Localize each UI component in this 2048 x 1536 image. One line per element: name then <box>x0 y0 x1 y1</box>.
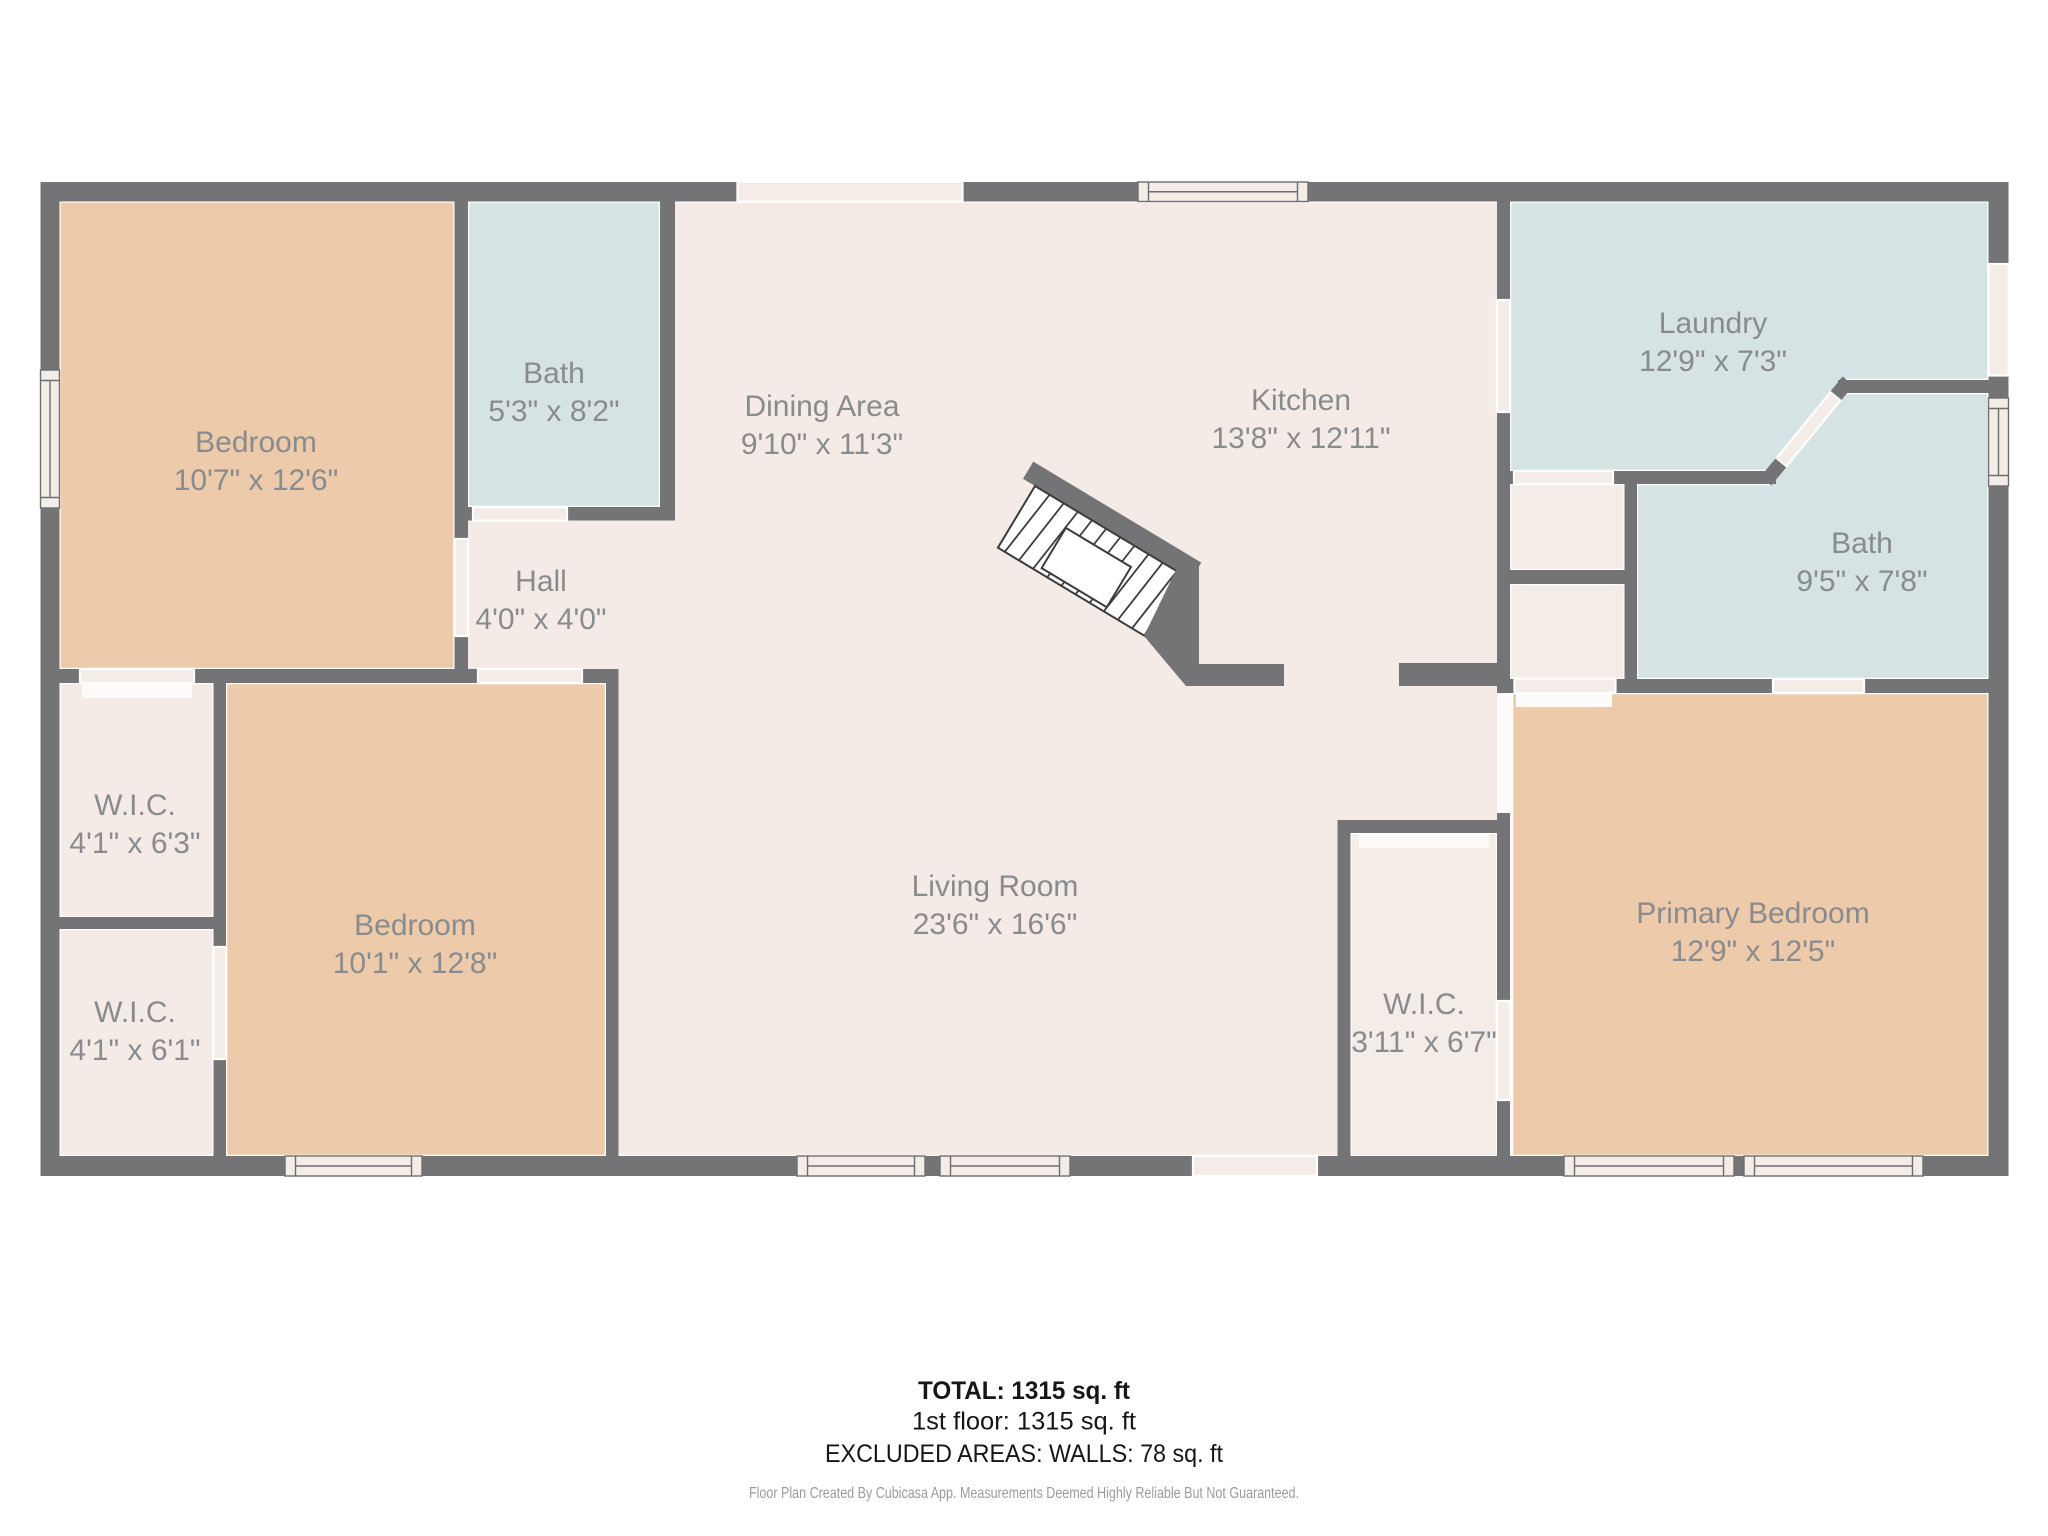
svg-text:Dining Area: Dining Area <box>744 390 899 423</box>
svg-text:10'1" x 12'8": 10'1" x 12'8" <box>333 947 498 980</box>
svg-text:23'6" x 16'6": 23'6" x 16'6" <box>913 908 1078 941</box>
svg-text:W.I.C.: W.I.C. <box>94 996 176 1029</box>
svg-text:Floor Plan Created By Cubicasa: Floor Plan Created By Cubicasa App. Meas… <box>749 1485 1299 1502</box>
svg-text:Kitchen: Kitchen <box>1251 384 1351 417</box>
svg-text:Bedroom: Bedroom <box>354 909 476 942</box>
svg-text:3'11" x 6'7": 3'11" x 6'7" <box>1351 1026 1497 1059</box>
svg-text:Bedroom: Bedroom <box>195 426 317 459</box>
svg-text:W.I.C.: W.I.C. <box>94 789 176 822</box>
svg-text:Bath: Bath <box>523 357 585 390</box>
svg-text:Hall: Hall <box>515 565 567 598</box>
svg-text:12'9" x 12'5": 12'9" x 12'5" <box>1671 935 1836 968</box>
svg-text:9'10" x 11'3": 9'10" x 11'3" <box>741 428 903 461</box>
svg-text:4'1" x 6'3": 4'1" x 6'3" <box>69 827 200 860</box>
svg-text:Living Room: Living Room <box>912 870 1079 903</box>
svg-text:TOTAL: 1315 sq. ft: TOTAL: 1315 sq. ft <box>918 1377 1131 1405</box>
svg-text:Laundry: Laundry <box>1659 307 1767 340</box>
svg-text:9'5" x 7'8": 9'5" x 7'8" <box>1796 565 1927 598</box>
svg-text:4'1" x 6'1": 4'1" x 6'1" <box>69 1034 200 1067</box>
svg-text:10'7" x 12'6": 10'7" x 12'6" <box>174 464 339 497</box>
svg-text:4'0" x 4'0": 4'0" x 4'0" <box>475 603 606 636</box>
svg-text:12'9" x 7'3": 12'9" x 7'3" <box>1639 345 1787 378</box>
svg-text:Bath: Bath <box>1831 527 1893 560</box>
svg-text:W.I.C.: W.I.C. <box>1383 988 1465 1021</box>
svg-text:5'3" x 8'2": 5'3" x 8'2" <box>488 395 619 428</box>
svg-text:EXCLUDED AREAS: WALLS: 78 sq.: EXCLUDED AREAS: WALLS: 78 sq. ft <box>825 1440 1223 1468</box>
svg-text:13'8" x 12'11": 13'8" x 12'11" <box>1212 422 1391 455</box>
svg-text:Primary Bedroom: Primary Bedroom <box>1636 897 1869 930</box>
svg-text:1st floor: 1315 sq. ft: 1st floor: 1315 sq. ft <box>912 1408 1136 1436</box>
